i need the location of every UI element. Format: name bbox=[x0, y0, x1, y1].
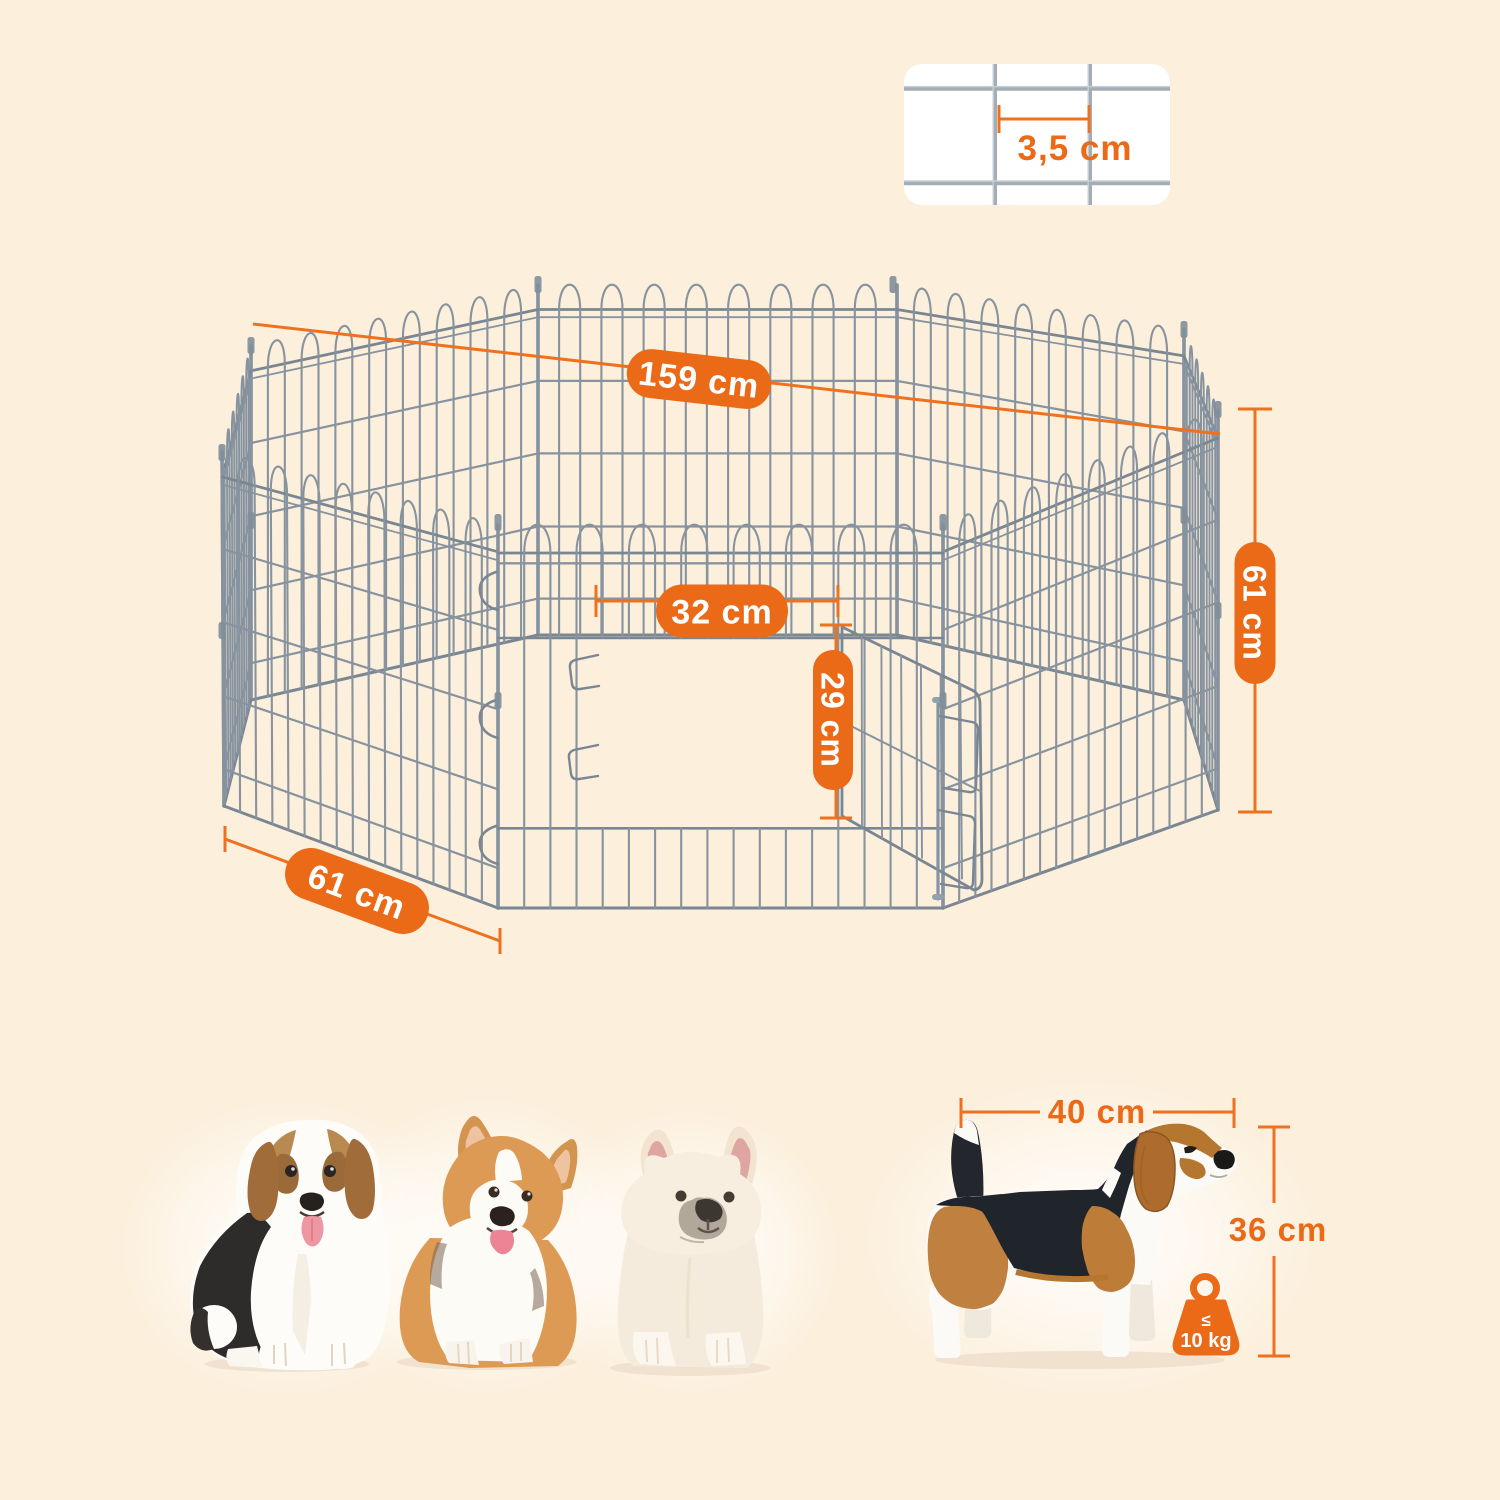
svg-text:61 cm: 61 cm bbox=[1236, 565, 1272, 661]
svg-text:40 cm: 40 cm bbox=[1048, 1093, 1147, 1130]
svg-text:29 cm: 29 cm bbox=[814, 672, 850, 768]
svg-text:36 cm: 36 cm bbox=[1229, 1211, 1328, 1248]
svg-text:≤: ≤ bbox=[1201, 1311, 1210, 1330]
svg-text:3,5 cm: 3,5 cm bbox=[1018, 129, 1133, 168]
svg-text:32 cm: 32 cm bbox=[671, 593, 772, 631]
svg-text:10 kg: 10 kg bbox=[1180, 1330, 1231, 1352]
